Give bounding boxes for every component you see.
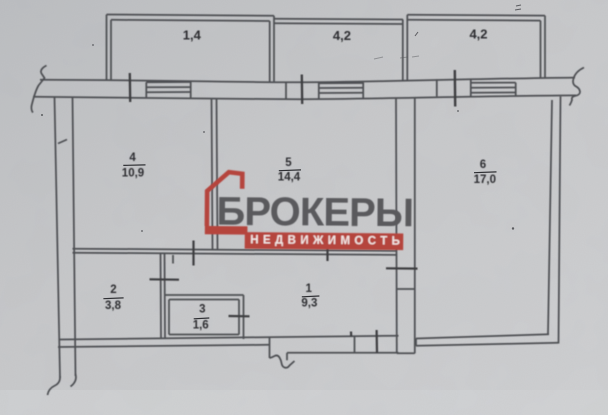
svg-text:6: 6 [480,159,486,171]
svg-text:2: 2 [110,284,116,296]
svg-text:3,8: 3,8 [105,300,122,312]
svg-text:10,9: 10,9 [122,168,144,180]
svg-text:1,4: 1,4 [183,28,202,43]
svg-text:1,6: 1,6 [193,319,209,331]
svg-text:3: 3 [199,303,205,315]
svg-text:5: 5 [285,157,292,169]
svg-text:4,2: 4,2 [469,27,487,42]
svg-text:1: 1 [305,283,312,295]
svg-text:БРОКЕРЫ: БРОКЕРЫ [216,190,413,236]
svg-text:17,0: 17,0 [474,174,496,186]
svg-text:9,3: 9,3 [301,298,317,310]
svg-text:14,4: 14,4 [278,172,301,184]
svg-text:4: 4 [129,152,136,164]
svg-text:НЕДВИЖИМОСТЬ: НЕДВИЖИМОСТЬ [250,234,404,247]
svg-text:4,2: 4,2 [333,28,351,43]
